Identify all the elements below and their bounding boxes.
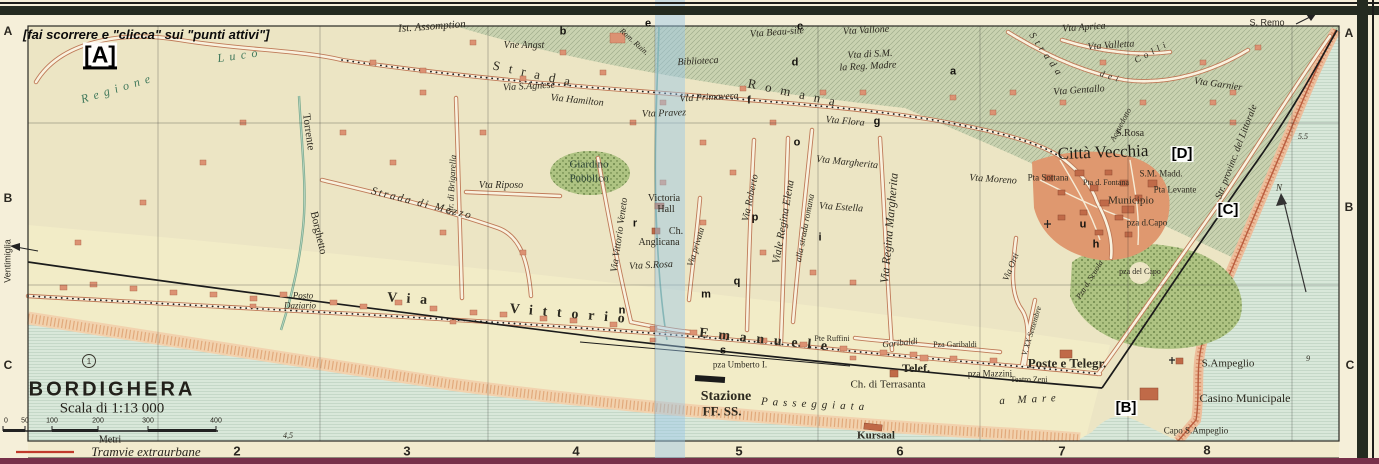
scalebar-tick-100: 100 [46, 418, 58, 425]
grid-row-right-c: C [1346, 359, 1355, 371]
grid-row-right-b: B [1345, 201, 1354, 213]
place-label-teatro-zeni: Teatro Zeni [1011, 376, 1048, 384]
index-letter-s: s [720, 346, 726, 357]
index-letter-g: g [874, 117, 881, 128]
grid-col-3: 3 [403, 445, 410, 458]
place-label-anglicana: Anglicana [638, 238, 679, 248]
map-title: BORDIGHERA [29, 379, 196, 402]
index-letter-d: d [792, 58, 799, 69]
grid-row-left-b: B [4, 192, 13, 204]
place-label-sm-madd: S.M. Madd. [1139, 170, 1182, 179]
index-letter-c: c [797, 22, 803, 33]
place-label-biblioteca: Biblioteca [677, 56, 719, 68]
grid-row-left-a: A [4, 25, 13, 37]
depth-sounding-1: 5.5 [1298, 133, 1308, 141]
index-letter-f: f [747, 96, 751, 107]
index-letter-i: i [818, 233, 821, 244]
index-letter-e: e [645, 19, 651, 30]
place-label-pubblico: Pubblico [569, 174, 608, 185]
grid-col-4: 4 [572, 445, 579, 458]
place-label-terrasanta: Ch. di Terrasanta [850, 380, 925, 391]
tram-route-badge: 1 [82, 354, 96, 368]
scalebar-tick-50: 50 [21, 418, 29, 425]
hotspot-b[interactable]: [B] [1115, 400, 1138, 416]
grid-col-8: 8 [1203, 444, 1210, 457]
place-label-hall: Hall [657, 205, 674, 215]
place-label-pta-sottana: Pta Sottana [1028, 174, 1069, 183]
grid-row-right-a: A [1345, 27, 1354, 39]
index-letter-m: m [701, 290, 711, 301]
index-letter-n: n [619, 306, 626, 317]
place-label-municipio: Municipio [1108, 196, 1154, 207]
place-label-daziario: Daziario [284, 302, 316, 311]
place-label-pta-levante: Pta Levante [1154, 186, 1197, 195]
grid-col-2: 2 [233, 445, 240, 458]
hotspot-a[interactable]: [A] [83, 42, 117, 69]
index-letter-b: b [560, 27, 567, 38]
index-letter-a: a [950, 67, 956, 78]
index-letter-r: r [633, 219, 637, 230]
place-label-casino: Casino Municipale [1200, 392, 1291, 404]
grid-col-7: 7 [1058, 445, 1065, 458]
index-letter-p: p [752, 213, 759, 224]
place-label-posto: Posto [293, 292, 314, 301]
grid-col-6: 6 [896, 445, 903, 458]
place-label-pza-d-capo: pza d.Capo [1127, 219, 1168, 228]
place-label-villa-angst: Vne Angst [504, 41, 545, 51]
place-label-kursaal: Kursaal [857, 431, 895, 442]
scalebar-tick-300: 300 [142, 418, 154, 425]
place-label-pte-ruffini: Pte Ruffini [814, 335, 849, 343]
frame-top-band [0, 6, 1379, 15]
scalebar-tick-0: 0 [4, 418, 8, 425]
place-label-s-rosa-north: S.Rosa [1116, 129, 1144, 139]
place-label-ch: Ch. [669, 227, 683, 237]
place-label-citta-vecchia: Città Vecchia [1057, 142, 1148, 162]
depth-sounding-2: 9 [1306, 355, 1310, 363]
frame-right-band [1357, 0, 1368, 464]
place-label-s-ampeglio: S.Ampeglio [1202, 359, 1255, 370]
place-label-stazione: Stazione [701, 390, 752, 404]
scalebar-tick-400: 400 [210, 418, 222, 425]
index-letter-q: q [734, 277, 741, 288]
grid-row-left-c: C [4, 359, 13, 371]
place-label-victoria: Victoria [648, 194, 680, 204]
frame-right-line [1372, 0, 1374, 464]
place-label-pta-fontana: Pta d. Fontana [1083, 179, 1129, 187]
index-letter-u: u [1080, 220, 1087, 231]
scalebar-tick-200: 200 [92, 418, 104, 425]
compass-n-label: N [1276, 184, 1282, 193]
place-label-capo-s-ampeglio: Capo S.Ampeglio [1164, 427, 1229, 436]
place-label-pza-garibaldi: Pza Garibaldi [933, 341, 977, 349]
place-label-ffss: FF. SS. [703, 405, 742, 418]
place-label-poste: Poste e Telegr. [1028, 357, 1107, 370]
place-label-pza-mazzini: pza Mazzini [968, 370, 1012, 379]
index-letter-h: h [1093, 240, 1100, 251]
frame-top-line [0, 2, 1379, 4]
street-label-pravez: Vta Pravez [642, 108, 686, 120]
grid-col-5: 5 [735, 445, 742, 458]
map-scale-text: Scala di 1:13 000 [60, 401, 165, 418]
depth-sounding-3: 4,5 [283, 432, 293, 440]
hotspot-d[interactable]: [D] [1171, 146, 1194, 162]
hotspot-c[interactable]: [C] [1217, 202, 1240, 218]
map-artwork [0, 0, 1379, 464]
place-label-pza-umberto: pza Umberto I. [713, 361, 767, 370]
direction-label-ventimiglia: Ventimiglia [4, 239, 13, 283]
instruction-text: [fai scorrere e "clicca" sui "punti atti… [23, 27, 269, 42]
place-label-pza-del-capo: pza del Capo [1119, 268, 1161, 276]
index-letter-o: o [794, 138, 801, 149]
place-label-telef: Telef. [902, 362, 930, 374]
direction-label-sanremo: S. Remo [1249, 19, 1284, 28]
map-canvas: Regione Luco Ist. Assomption Vne Angst V… [0, 0, 1379, 464]
street-label-riposo: Vta Riposo [479, 181, 523, 191]
place-label-giardino: Giardino [569, 160, 608, 171]
frame-bottom-band [0, 458, 1379, 464]
